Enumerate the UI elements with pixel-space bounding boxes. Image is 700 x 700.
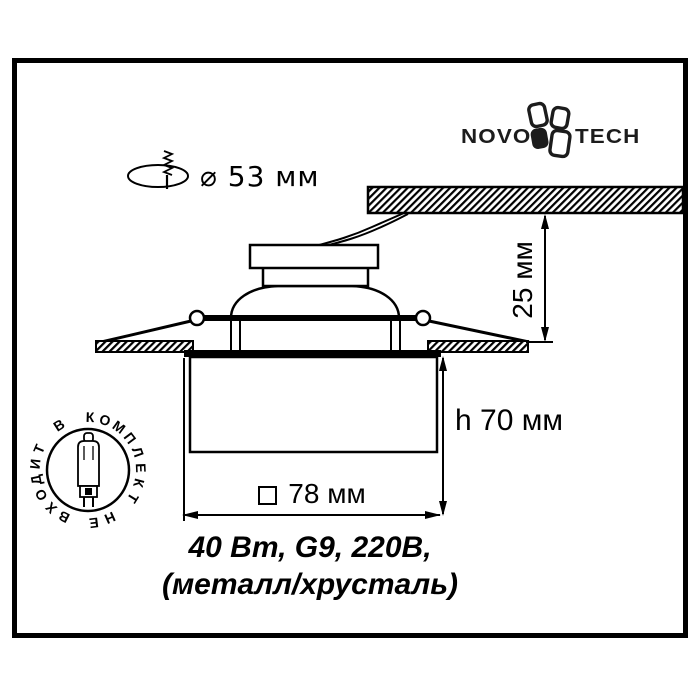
stamp-ring-char: К [85,410,94,424]
ceiling-panel [368,187,683,213]
mounting-plate [197,315,423,321]
spec-line-2: (металл/хрусталь) [110,568,510,602]
dome [231,286,399,318]
clip-pivot-left [190,311,204,325]
crystal-body [190,357,437,452]
neck [263,267,368,286]
stamp-ring-char: Е [89,515,100,530]
clip-pivot-right [416,311,430,325]
stamp-ring-char: И [28,459,43,470]
ceiling-strip-right [428,341,528,352]
spring-arm-left [97,321,191,343]
width-dimension: 78 мм [184,478,440,510]
technical-diagram: ⌀ 53 мм NOVO TECH 25 мм h 70 мм 78 мм 40… [0,0,700,700]
logo-text-novo: NOVO [461,126,531,149]
stamp [47,429,129,511]
height-dimension-label: h 70 мм [455,404,563,438]
ceiling-strip-left [96,341,193,352]
width-dimension-label: 78 мм [288,478,365,510]
square-symbol [258,486,277,505]
logo-text-tech: TECH [575,126,640,149]
g9-lamp-icon [78,433,99,507]
mounting-hole-icon [128,151,188,189]
junction-box [250,245,378,268]
power-wire [312,213,408,247]
spec-line-1: 40 Вт, G9, 220В, [110,531,510,565]
depth-dimension-label: 25 мм [505,230,541,330]
hole-diameter-label: ⌀ 53 мм [200,160,320,193]
stamp-ring-char: Е [134,463,148,473]
dim-line-h70 [439,356,447,516]
novotech-clover-icon [528,103,571,158]
